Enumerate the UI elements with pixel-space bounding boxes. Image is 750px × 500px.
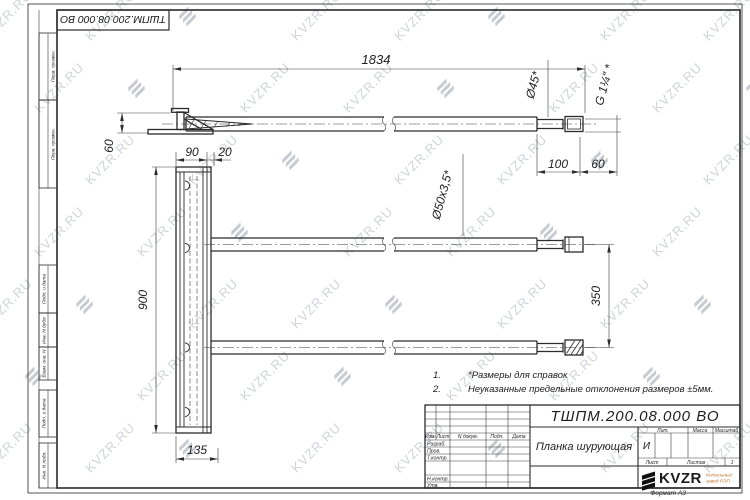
dimension-hook-height: 60 <box>102 113 170 153</box>
margin-label: Перв. примен. <box>51 128 57 160</box>
lit-label: Лит. <box>656 428 669 434</box>
part-name: Планка шурующая <box>536 441 632 453</box>
engineering-drawing: Перв. примен. Перв. примен. Подп. и дата… <box>0 0 750 500</box>
margin-box: Подп. и дата <box>39 265 57 313</box>
row-label-razrab: Разраб. <box>427 442 446 448</box>
top-stamp: ТШПМ.200.08.000 ВО <box>57 10 169 30</box>
row-label-tkontr: Т.контр. <box>427 456 448 462</box>
dim-text: 90 <box>185 145 199 159</box>
note-number: 1. <box>433 370 441 381</box>
margin-label: Перв. примен. <box>51 50 57 82</box>
top-view <box>148 109 596 135</box>
dimension-plank-width: 90 20 <box>176 145 232 166</box>
margin-box: Инв. N дубл. <box>39 313 57 347</box>
dim-text: 60 <box>102 139 116 153</box>
dim-text: 1834 <box>362 52 391 67</box>
dimension-length: 1834 <box>173 52 585 113</box>
margin-box: Взам. инв. N <box>39 347 57 380</box>
logo-subtext-line1: Котельный <box>706 472 732 479</box>
margin-boxes: Перв. примен. Перв. примен. Подп. и дата… <box>39 33 57 488</box>
row-label-nkontr: Н.контр. <box>427 477 449 483</box>
dim-text: 20 <box>217 145 232 159</box>
label-dia-tube: Ø50х3,5* <box>429 154 463 236</box>
scale-label: Масштаб <box>715 428 739 434</box>
col-header-date: Дата <box>511 434 525 440</box>
dimension-tube-spacing: 350 <box>585 245 614 348</box>
dimension-plank-bottom: 135 <box>176 436 218 463</box>
col-header-list: Лист <box>436 434 450 440</box>
hook-bracket <box>148 109 213 135</box>
margin-label: Подп. и дата <box>42 398 48 428</box>
note-number: 2. <box>432 384 441 395</box>
dim-text: Ø45* <box>523 70 544 101</box>
dim-text: 900 <box>136 290 150 310</box>
dim-text: 100 <box>548 157 568 171</box>
dim-text: 135 <box>187 443 207 457</box>
margin-box: Перв. примен. <box>39 33 57 100</box>
title-block: ТШПМ.200.08.000 ВО Планка шурующая Изм. … <box>425 405 740 497</box>
drawing-sheet: KVZR.RUKVZR.RUKVZR.RUKVZR.RUKVZR.RUKVZR.… <box>0 0 750 500</box>
dim-text: Ø50х3,5* <box>429 169 456 222</box>
notes: 1. *Размеры для справок 2. Неуказанные п… <box>432 370 713 395</box>
col-header-sign: Подп. <box>490 434 503 440</box>
margin-box: Инв. N подл. <box>39 443 57 488</box>
dimension-end-lengths: 100 60 <box>537 119 621 176</box>
sheet-label: Лист <box>645 460 659 466</box>
note-text: Неуказанные предельные отклонения размер… <box>468 384 713 395</box>
label-thread: G 1¼″ * <box>592 63 617 122</box>
dim-text: 60 <box>591 157 605 171</box>
margin-label: Инв. N подл. <box>42 451 48 479</box>
row-label-prov: Пров. <box>427 449 441 455</box>
col-header-doc: N докум. <box>458 434 478 440</box>
plank <box>176 167 211 433</box>
col-header-izm: Изм. <box>425 434 436 440</box>
sheets-label: Листов <box>686 460 706 466</box>
logo-subtext-line2: завод РЭП <box>705 479 730 485</box>
tube-lower <box>204 340 596 355</box>
dim-text: 350 <box>589 286 603 306</box>
margin-label: Взам. инв. N <box>42 349 48 377</box>
mass-label: Масса <box>693 428 708 434</box>
title-designation: ТШПМ.200.08.000 ВО <box>550 408 719 425</box>
top-stamp-designation: ТШПМ.200.08.000 ВО <box>60 13 166 25</box>
note-text: *Размеры для справок <box>468 370 568 381</box>
row-label-utv: Утв. <box>427 483 439 489</box>
tube-upper <box>204 237 596 252</box>
sheets-value: 1 <box>731 460 734 466</box>
dimension-plank-height: 900 <box>136 167 177 433</box>
margin-box: Перв. примен. <box>39 100 57 188</box>
format-label: Формат А3 <box>650 490 686 497</box>
logo-text: KVZR <box>659 470 702 487</box>
margin-label: Инв. N дубл. <box>42 316 48 344</box>
margin-box: Подп. и дата <box>39 390 57 437</box>
lit-value: И <box>643 441 651 452</box>
margin-label: Подп. и дата <box>42 274 48 304</box>
dim-text: G 1¼″ * <box>592 63 616 107</box>
label-dia-end: Ø45* <box>523 60 548 117</box>
